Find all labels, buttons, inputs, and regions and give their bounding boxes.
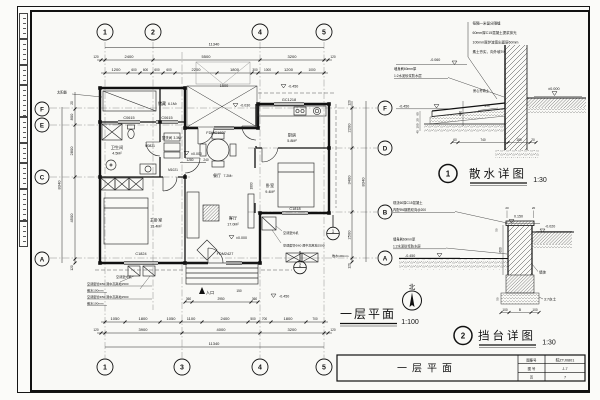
callout-2-number: 2 <box>299 262 302 267</box>
d2-wall-note-1: 墙身刷60mm厚 <box>393 237 416 242</box>
solar-note: 太阳能 <box>57 90 68 95</box>
grid-label-bottom-4: 4 <box>258 365 262 372</box>
entry-label: 入口 <box>206 290 214 295</box>
grid-label-top-5: 5 <box>322 30 326 37</box>
d1-level-zero: ±0.000 <box>548 87 560 91</box>
dim: 120 <box>93 328 99 332</box>
titleblock-row2-label: 图 号 <box>528 366 536 371</box>
dim: 2200 <box>347 123 352 133</box>
d2-level-top: 0.150 <box>514 215 523 219</box>
room-label-living: 客厅 <box>229 215 237 222</box>
dim-1280: 1280 <box>186 158 193 162</box>
d1-level-low: -0.450 <box>399 105 409 109</box>
dim: 120 <box>330 328 336 332</box>
d2-soil-label: 3:7灰土 <box>544 297 557 302</box>
level-zero-hall: ±0.000 <box>191 152 202 156</box>
dim: 800 <box>69 113 74 120</box>
apron-note-right: 散水100mm <box>332 253 349 258</box>
grid-label-right-B: B <box>383 209 388 216</box>
dim: 120 <box>330 55 336 59</box>
d1-leader-4: 素土夯实，向外坡3% <box>473 49 506 54</box>
drawing-canvas: 1 2 4 5 1 3 4 5 F E C A F D B A 11340 12… <box>0 0 600 400</box>
apron-note-left-b: 散水100mm <box>87 300 104 305</box>
room-label-dining: 餐厅 <box>213 172 221 178</box>
level-neg030: -0.030 <box>240 104 250 108</box>
plan-title: 一层平面 1:100 <box>340 307 419 326</box>
room-label-wash: 盥洗间 <box>162 135 173 140</box>
dim: 4000 <box>217 327 227 332</box>
grid-label-left-F: F <box>40 106 44 113</box>
dim: 2200 <box>192 67 202 72</box>
d1-dim-b3: 180 <box>516 138 522 142</box>
level-neg450-bottom: -0.450 <box>279 295 289 299</box>
d1-wall-note-2: 1:2水泥砂浆防水层 <box>394 73 422 78</box>
level-zero-living: ±0.000 <box>236 236 247 240</box>
door-label-fdmc1827: FDMC1827 <box>206 131 225 135</box>
room-area-wash: 3.3M² <box>174 136 182 140</box>
dim: 300 <box>252 68 258 72</box>
grid-label-bottom-1: 1 <box>103 365 107 372</box>
grid-label-top-4: 4 <box>258 30 262 37</box>
room-label-storage: 储藏 <box>158 100 166 106</box>
dim: 120 <box>348 100 352 106</box>
armchair <box>197 240 217 260</box>
titleblock-row2-value: J-7 <box>562 367 567 371</box>
room-area-storage: 6.1M² <box>168 102 178 106</box>
dim: 1800 <box>139 316 149 321</box>
master-bed <box>104 198 148 244</box>
d2-dim-20a: 20 <box>505 206 509 210</box>
room-area-living: 17.0M² <box>227 223 239 227</box>
detail-dangtai: 现浇60厚C15混凝土 内配Φ6钢筋双向@200 20 20 0.150 -0.… <box>393 200 574 347</box>
detail-sanshui: 每隔一米留分隔缝 60mm厚C15混凝土提浆抹光 100mm厚炉渣宽出面层60m… <box>394 21 586 186</box>
d2-level-low: -0.450 <box>405 254 415 258</box>
dim: 120 <box>348 263 352 269</box>
dim: 2800 <box>69 146 74 156</box>
dim: 700 <box>312 317 318 321</box>
north-label: 北 <box>409 283 416 291</box>
d1-scale: 1:30 <box>533 177 547 184</box>
d2-dim-b1: 100 <box>502 308 508 312</box>
dim: 2950 <box>217 297 224 301</box>
room-area-kitchen: 5.8M² <box>287 139 297 143</box>
d2-wall-label: 墙体 <box>539 270 547 275</box>
room-label-master: 主卧室 <box>150 217 163 224</box>
grid-label-top-2: 2 <box>151 30 155 37</box>
d2-number: 2 <box>461 332 466 341</box>
ac-unit-label-left: 空调室外机 <box>116 274 132 279</box>
dim: 360 <box>186 297 192 301</box>
dining-table <box>207 139 229 161</box>
grid-label-top-1: 1 <box>103 30 107 37</box>
north-arrow: 北 <box>403 283 422 310</box>
d2-note-1b: 内配Φ6钢筋双向@200 <box>393 207 426 212</box>
coffee-table <box>203 205 219 221</box>
d2-level-right: -0.020 <box>545 225 555 229</box>
ac-sleeve-note-60: 空调套管Φ60 洞中高离地2500 <box>283 243 325 248</box>
d2-dim-b2: B <box>519 308 521 312</box>
d2-title: 挡台详图 <box>478 329 536 343</box>
ac-unit-label-right: 空调室外机 <box>283 230 299 235</box>
window-label-c1818: C1818 <box>289 207 300 211</box>
window-label-c0615-a: C0615 <box>123 116 134 120</box>
entry-steps <box>186 263 258 284</box>
window-label-c0615-b: C0615 <box>161 116 172 120</box>
dim-240: 240 <box>203 158 209 162</box>
d1-mid-note: 房心夯填土 <box>473 88 490 93</box>
d2-wall-note-2: 1:2水泥砂浆防水层 <box>393 244 421 249</box>
dim: 1000 <box>308 68 315 72</box>
door-label-m1021: M1021 <box>168 168 178 172</box>
door-label-fdm2427: FDM2427 <box>217 252 234 256</box>
dim: 1100 <box>187 316 196 321</box>
d1-level-top: -0.060 <box>430 58 440 62</box>
room-label-kitchen: 厨房 <box>288 132 296 139</box>
d1-dim-b4: 20 <box>531 138 535 142</box>
grid-label-bottom-5: 5 <box>322 365 326 372</box>
d2-dim-50b: 50 <box>496 297 500 301</box>
dim: 3200 <box>288 327 298 332</box>
d1-dim-l4: 40 <box>416 130 420 134</box>
dim: 1800 <box>284 316 294 321</box>
dim: 600 <box>143 68 149 72</box>
d2-dim-20b: 20 <box>532 206 536 210</box>
title-block: 一层平面 图集号 皖ZTJ0801 图 号 J-7 页 7 <box>337 355 585 381</box>
dim: 2500 <box>347 230 352 240</box>
titleblock-row3-value: 7 <box>564 376 566 380</box>
d1-dim-l3: 100 <box>416 123 420 128</box>
grid-bubble-labels: 1 2 4 5 1 3 4 5 F E C A F D B A <box>40 30 388 372</box>
dim: 120 <box>93 55 99 59</box>
d1-dim-b1: 60 <box>453 138 457 142</box>
dim: 500 <box>250 317 256 321</box>
grid-label-right-D: D <box>383 145 388 152</box>
d1-wall-note-1: 墙身刷60mm厚 <box>394 66 417 71</box>
dim: 120 <box>70 265 74 271</box>
grid-label-right-A: A <box>383 255 388 262</box>
grid-bubbles <box>35 24 392 375</box>
dim: 1050 <box>111 316 121 321</box>
d1-slope: 3% <box>484 104 490 108</box>
grid-label-bottom-3: 3 <box>180 365 184 372</box>
d2-dim-600: 600 <box>499 247 503 253</box>
room-area-master: 15.4M² <box>150 225 162 229</box>
d1-leader-1: 每隔一米留分隔缝 <box>473 21 501 26</box>
dim-150: 150 <box>236 289 242 293</box>
d2-scale: 1:30 <box>542 340 556 347</box>
entry-arrow <box>199 287 205 294</box>
sofa <box>187 192 199 238</box>
tv-cabinet <box>248 194 254 228</box>
bed <box>278 163 314 207</box>
grid-label-left-E: E <box>40 122 44 129</box>
dim: 2400 <box>221 316 231 321</box>
dim: 360 <box>252 297 258 301</box>
dim: 4500 <box>69 213 74 223</box>
d1-leader-3: 100mm厚炉渣宽出面层60mm <box>473 40 519 45</box>
titleblock-drawing-name: 一层平面 <box>397 363 457 375</box>
dim: 2400 <box>125 54 135 59</box>
window-label-gc1218: GC1218 <box>282 98 296 102</box>
room-area-bedroom: 9.4M² <box>265 190 275 194</box>
d1-title: 散水详图 <box>469 167 527 181</box>
dim: 1000 <box>264 68 271 72</box>
d1-number: 1 <box>446 170 451 179</box>
room-area-bath: 4.5M² <box>112 152 122 156</box>
d1-dim-l2: 20 <box>416 118 420 122</box>
plan-title-text: 一层平面 <box>340 307 396 321</box>
grid-label-left-C: C <box>40 174 45 181</box>
d1-leader-2: 60mm厚C15混凝土提浆抹光 <box>473 30 518 35</box>
titleblock-row1-label: 图集号 <box>526 357 537 362</box>
dim: 1200 <box>284 67 294 72</box>
dim-left-overall: 8340 <box>57 180 62 190</box>
apron-note-left-a: 散水100mm <box>87 287 104 292</box>
room-label-bedroom: 卧室 <box>266 182 274 189</box>
callout-1-number: 1 <box>332 228 335 233</box>
dim-top-overall: 11340 <box>209 41 221 46</box>
dim-1800: 1800 <box>250 182 254 189</box>
door-label-m0821: M0821 <box>145 144 155 148</box>
dim: 1200 <box>112 67 122 72</box>
d2-note-1a: 现浇60厚C15混凝土 <box>393 200 423 205</box>
dim: 1050 <box>167 316 177 321</box>
plan-scale: 1:100 <box>401 319 419 326</box>
dim: 3200 <box>288 54 298 59</box>
d1-dim-l1: 60 <box>416 112 420 116</box>
window-label-c1824: C1824 <box>135 252 146 256</box>
room-label-bath: 卫生间 <box>111 144 124 151</box>
dim: 20 <box>70 101 74 105</box>
ac-sleeve-note-50-a: 空调套管Φ50 洞中高离地2500 <box>87 281 129 286</box>
grid-label-left-A: A <box>40 256 45 263</box>
level-neg450-top: -0.450 <box>288 85 298 89</box>
dim: 1800 <box>230 67 240 72</box>
titleblock-row1-value: 皖ZTJ0801 <box>556 357 575 362</box>
grid-label-right-F: F <box>383 105 387 112</box>
wardrobe <box>101 178 143 190</box>
dim: 600 <box>154 68 160 72</box>
planter-boxes <box>286 253 318 262</box>
kitchen-counter <box>258 106 326 116</box>
dim: 3400 <box>347 175 352 185</box>
ac-sleeve-note-50-b: 空调套管Φ50 洞中高离地2500 <box>87 294 129 299</box>
d2-dim-50a: 50 <box>495 228 499 232</box>
dim: 3900 <box>139 327 149 332</box>
room-area-dining: 7.2M² <box>224 174 234 178</box>
d1-dim-400: 400 <box>459 111 463 117</box>
dim: 5500 <box>202 54 212 59</box>
dim-right-overall: 8340 <box>361 177 366 187</box>
dim: 600 <box>166 68 172 72</box>
dim-bottom-overall: 11340 <box>209 341 221 346</box>
dim: 700 <box>262 317 268 321</box>
d1-dim-b2: 740 <box>480 138 486 142</box>
dim: 600 <box>131 68 137 72</box>
d2-dim-b3: 100 <box>532 308 538 312</box>
